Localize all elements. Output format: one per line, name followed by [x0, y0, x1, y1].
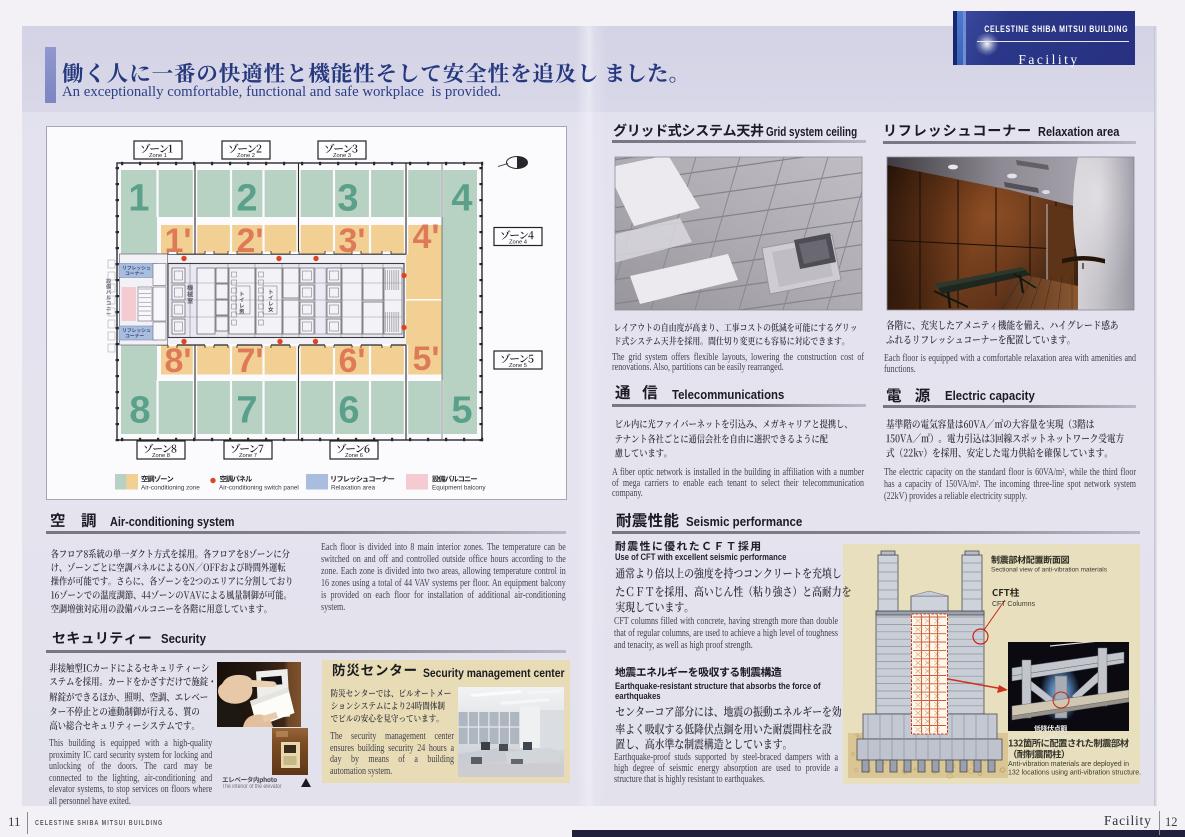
svg-text:3: 3 — [337, 178, 358, 220]
svg-text:8: 8 — [129, 390, 150, 432]
svg-text:7': 7' — [237, 342, 264, 380]
svg-text:5': 5' — [413, 340, 440, 378]
svg-text:1: 1 — [128, 178, 149, 220]
svg-text:Equipment balcony: Equipment balcony — [432, 485, 486, 492]
svg-text:4: 4 — [451, 178, 472, 220]
svg-text:Zone 1: Zone 1 — [149, 153, 167, 159]
svg-text:Zone 7: Zone 7 — [239, 453, 257, 459]
svg-text:7: 7 — [236, 390, 257, 432]
svg-text:Anti-vibration materials are d: Anti-vibration materials are deployed in — [1008, 761, 1129, 768]
svg-text:1': 1' — [165, 222, 192, 260]
svg-text:Air-conditioning zone: Air-conditioning zone — [141, 485, 200, 492]
svg-text:Zone 6: Zone 6 — [345, 453, 363, 459]
svg-text:8': 8' — [165, 342, 192, 380]
svg-text:Relaxation area: Relaxation area — [331, 485, 376, 492]
svg-text:Zone 8: Zone 8 — [152, 453, 170, 459]
svg-text:Sectional view of anti-vibrati: Sectional view of anti-vibration materia… — [991, 567, 1108, 574]
svg-text:2: 2 — [236, 178, 257, 220]
svg-text:132 locations using anti-vibra: 132 locations using anti-vibration struc… — [1008, 770, 1141, 777]
svg-text:2': 2' — [237, 222, 264, 260]
svg-text:5: 5 — [451, 390, 472, 432]
svg-text:6: 6 — [338, 390, 359, 432]
svg-text:Zone 2: Zone 2 — [237, 153, 255, 159]
svg-text:Air-conditioning switch panel: Air-conditioning switch panel — [219, 485, 299, 492]
svg-text:Low-yield-point steel: Low-yield-point steel — [1034, 735, 1084, 741]
svg-text:Zone 3: Zone 3 — [333, 153, 351, 159]
svg-text:Zone 5: Zone 5 — [509, 363, 527, 369]
svg-text:CFT Columns: CFT Columns — [992, 601, 1036, 608]
svg-text:4': 4' — [413, 218, 440, 256]
svg-text:3': 3' — [339, 222, 366, 260]
svg-text:6': 6' — [339, 342, 366, 380]
svg-text:Zone 4: Zone 4 — [509, 240, 528, 246]
